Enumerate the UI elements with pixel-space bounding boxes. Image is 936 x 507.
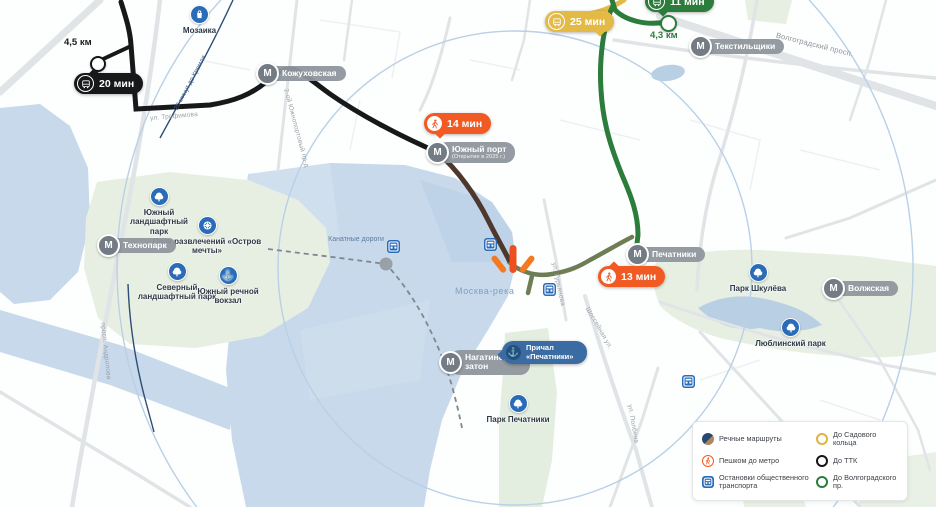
legend-label: Пешком до метро xyxy=(719,457,779,465)
transit-stop-icon xyxy=(702,476,714,488)
poi-label: Южный речной вокзал xyxy=(192,287,264,306)
shopping-bag-icon xyxy=(190,5,209,24)
badge-20-min: 20 мин xyxy=(74,73,143,94)
badge-label: 20 мин xyxy=(99,78,134,90)
metro-pechatniki: М Печатники xyxy=(626,243,705,266)
pond-top xyxy=(650,63,686,84)
badge-11-min: 11 мин xyxy=(645,0,714,12)
cable-car-station-dot xyxy=(380,258,393,271)
poi-label: Люблинский парк xyxy=(755,339,826,348)
tree-icon xyxy=(509,394,528,413)
black-ring-icon xyxy=(816,455,828,467)
poi-mozaika: Мозаика xyxy=(172,5,227,35)
legend-item-volgogradsky: До Волгоградского пр. xyxy=(816,474,898,491)
poi-pechatniki-park: Парк Печатники xyxy=(478,394,558,424)
metro-sublabel: (Открытие в 2025 г.) xyxy=(452,154,506,160)
road-volgogradsky xyxy=(660,16,936,106)
poi-label: Мозаика xyxy=(183,26,216,35)
badge-14-min: 14 мин xyxy=(424,113,491,134)
metro-tekstilshchiki: М Текстильщики xyxy=(689,35,784,58)
poi-shkuleva-park: Парк Шкулёва xyxy=(722,263,794,293)
cable-car-label: Канатные дороги xyxy=(328,236,384,244)
legend-item-ttk: До ТТК xyxy=(816,455,898,467)
badge-label: 14 мин xyxy=(447,118,482,130)
metro-yuzhny-port: М Южный порт(Открытие в 2025 г.) xyxy=(426,141,515,164)
legend-item-walk: Пешком до метро xyxy=(702,455,810,467)
distance-volgogradsky: 4,3 км xyxy=(650,30,678,41)
poi-lyublinsky-park: Люблинский парк xyxy=(748,318,833,348)
legend-label: До Садового кольца xyxy=(833,431,898,448)
walking-person-icon xyxy=(702,455,714,467)
map-canvas: Волгоградский просп. 2-ой Южнопортовый п… xyxy=(0,0,936,507)
river-route-icon xyxy=(702,433,714,445)
metro-icon: М xyxy=(689,35,712,58)
tree-icon xyxy=(150,187,169,206)
metro-icon: М xyxy=(97,234,120,257)
pier-label: Причал «Печатники» xyxy=(526,344,578,361)
legend-label: До Волгоградского пр. xyxy=(833,474,898,491)
legend-label: До ТТК xyxy=(833,457,857,465)
metro-icon: М xyxy=(439,351,462,374)
tree-icon xyxy=(781,318,800,337)
map-legend: Речные маршруты До Садового кольца Пешко… xyxy=(692,421,908,501)
distance-ttk: 4,5 км xyxy=(64,37,92,48)
badge-25-min: 25 мин xyxy=(545,11,614,32)
poi-label: Парк Шкулёва xyxy=(730,284,787,293)
water-left-backwater xyxy=(0,104,90,304)
legend-label: Остановки общественного транспорта xyxy=(719,474,810,491)
legend-item-transit-stops: Остановки общественного транспорта xyxy=(702,474,810,491)
ferris-wheel-icon xyxy=(198,216,217,235)
metro-tekhnopark: М Технопарк xyxy=(97,234,176,257)
badge-label: 25 мин xyxy=(570,16,605,28)
metro-icon: М xyxy=(822,277,845,300)
yellow-ring-icon xyxy=(816,433,828,445)
metro-icon: М xyxy=(256,62,279,85)
metro-volzhskaya: М Волжская xyxy=(822,277,898,300)
badge-13-min: 13 мин xyxy=(598,266,665,287)
route-ttk-spur xyxy=(101,46,131,60)
metro-kozhukhovskaya: М Кожуховская xyxy=(256,62,346,85)
bus-icon xyxy=(77,75,94,92)
pier-pechatniki: ⚓ Причал «Печатники» xyxy=(502,341,587,364)
badge-label: 13 мин xyxy=(621,271,656,283)
bus-icon xyxy=(548,13,565,30)
metro-label: Текстильщики xyxy=(700,39,784,54)
walking-person-icon xyxy=(601,269,616,284)
green-ring-icon xyxy=(816,476,828,488)
river-label: Москва-река xyxy=(455,286,514,296)
badge-label: 11 мин xyxy=(670,0,705,8)
poi-label: Парк Печатники xyxy=(487,415,550,424)
legend-item-sadovoe: До Садового кольца xyxy=(816,431,898,448)
legend-label: Речные маршруты xyxy=(719,435,782,443)
poi-south-river-terminal: ⚓ Южный речной вокзал xyxy=(192,266,264,306)
tree-icon xyxy=(749,263,768,282)
tree-icon xyxy=(168,262,187,281)
anchor-icon: ⚓ xyxy=(506,345,521,360)
anchor-icon: ⚓ xyxy=(219,266,238,285)
walking-person-icon xyxy=(427,116,442,131)
metro-icon: М xyxy=(426,141,449,164)
legend-item-river-routes: Речные маршруты xyxy=(702,433,810,445)
metro-icon: М xyxy=(626,243,649,266)
